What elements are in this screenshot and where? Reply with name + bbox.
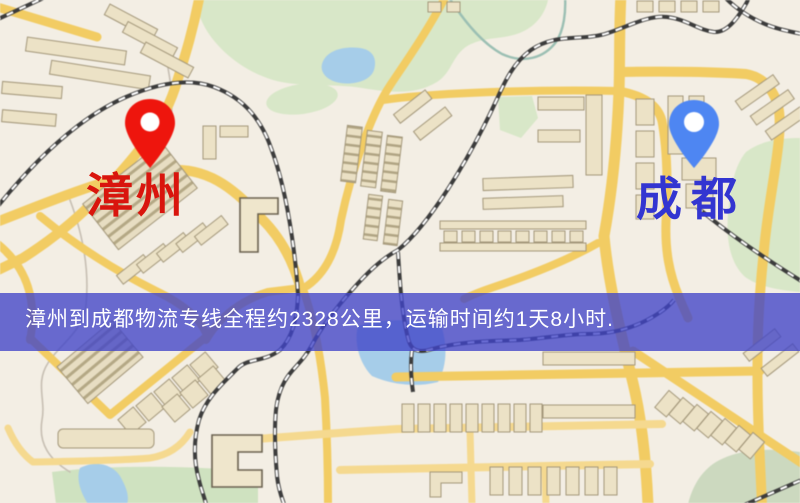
origin-city-label: 漳州 — [86, 174, 186, 221]
route-info-text: 漳州到成都物流专线全程约2328公里，运输时间约1天8小时. — [0, 293, 800, 346]
origin-pin-hole — [141, 113, 160, 132]
route-info-banner: 漳州到成都物流专线全程约2328公里，运输时间约1天8小时. — [0, 293, 800, 351]
destination-pin-hole — [684, 112, 704, 132]
map-art — [0, 0, 800, 503]
destination-city-label: 成都 — [636, 177, 746, 223]
map-canvas[interactable]: 漳州 成都 漳州到成都物流专线全程约2328公里，运输时间约1天8小时. — [0, 0, 800, 503]
